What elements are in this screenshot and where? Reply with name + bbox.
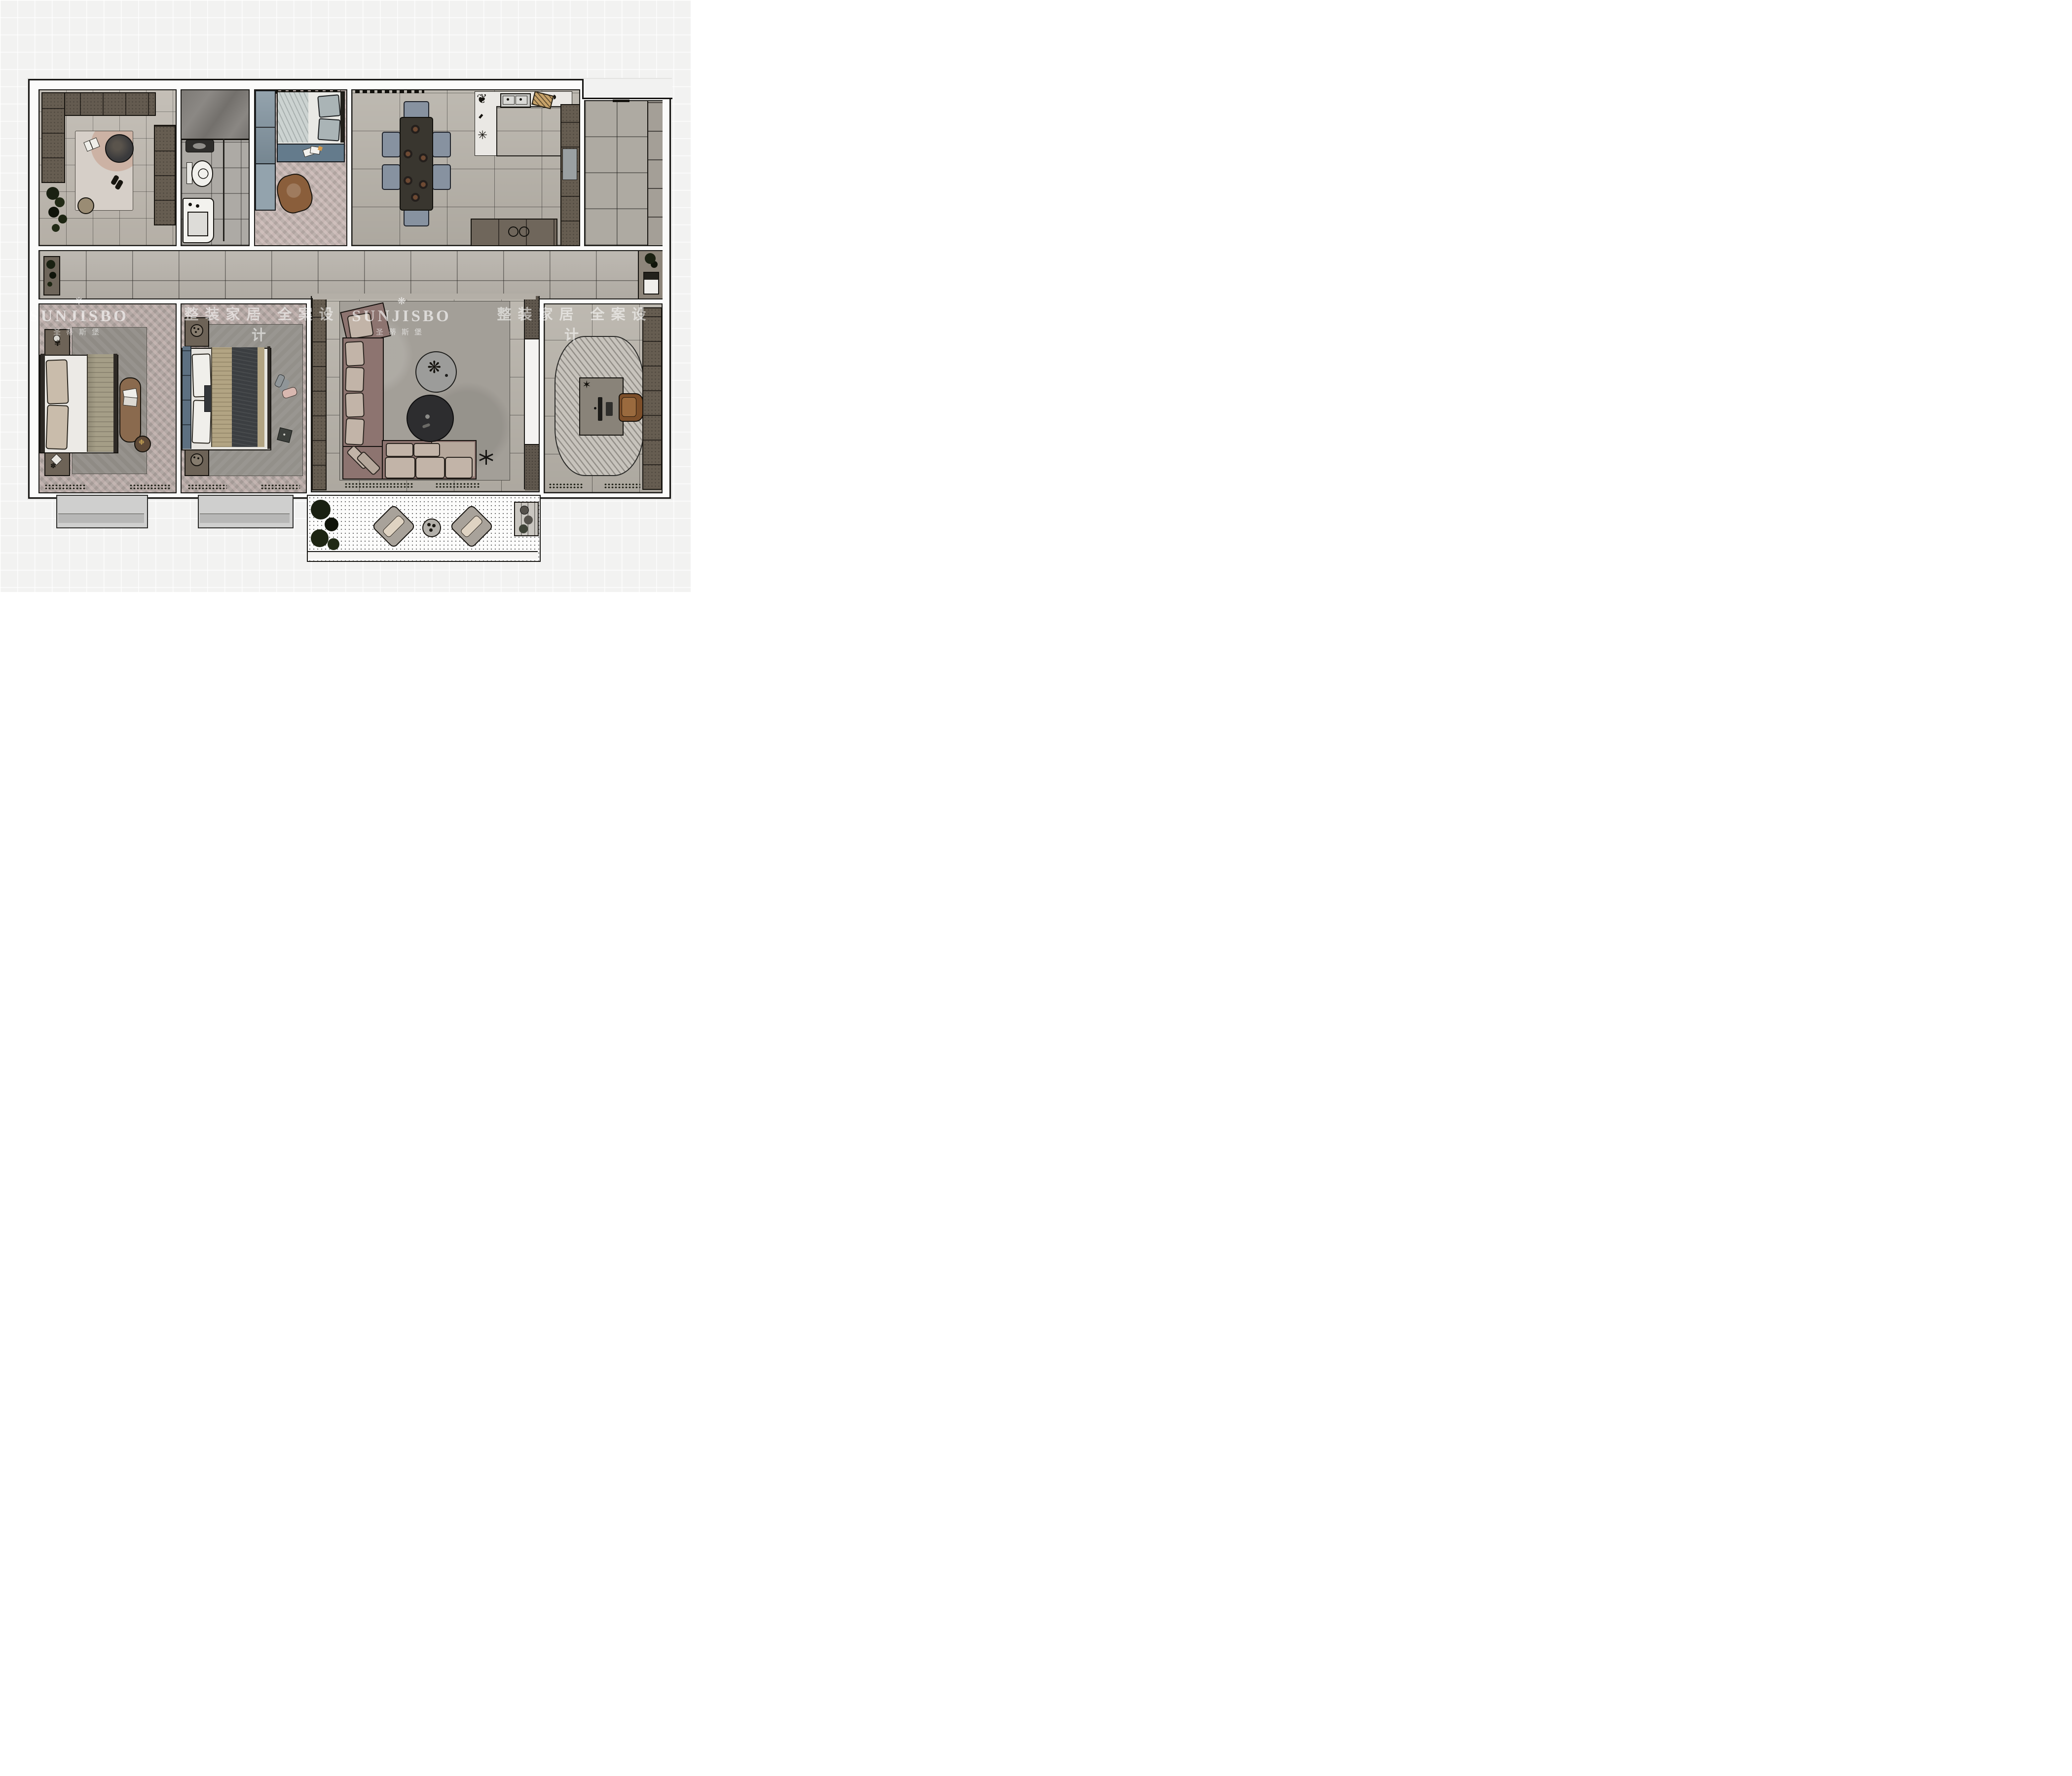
nightstand (185, 446, 209, 476)
place-setting (404, 176, 412, 185)
lounge-chair (449, 504, 494, 549)
place-setting (411, 125, 420, 134)
lounge-chair (105, 134, 134, 163)
toilet (186, 160, 212, 185)
shower-marble-slab (182, 90, 249, 140)
corridor-living-opening (313, 294, 536, 299)
desk: ✶ (579, 377, 624, 436)
double-bed (182, 348, 271, 450)
headboard (183, 346, 191, 449)
room-kids-bedroom (254, 89, 347, 246)
headboard (40, 354, 45, 452)
sofa-left-run (342, 337, 384, 449)
sofa-bottom-run (382, 440, 477, 480)
beanbag-chair (273, 170, 316, 217)
coffee-table-plant: ❋ (415, 351, 457, 393)
balcony-table (422, 518, 441, 537)
place-setting (404, 149, 412, 158)
footboard (267, 346, 270, 449)
kids-cabinet-low (255, 163, 276, 211)
place-setting (419, 180, 428, 189)
footboard (113, 354, 117, 452)
plants (549, 483, 583, 489)
herbs-icon: ❦ (477, 92, 487, 105)
blanket-charcoal (232, 347, 258, 447)
plants (187, 484, 227, 490)
blanket (87, 354, 115, 452)
plants (129, 484, 171, 490)
plant-cluster (46, 187, 59, 200)
shower-glass-line (223, 139, 224, 241)
pillow (45, 359, 69, 404)
nightstand (185, 317, 209, 347)
monitor-base (606, 402, 613, 416)
dining-chair (382, 132, 401, 157)
blanket-tan-edge (258, 347, 264, 447)
kitchen-zone-outline (496, 106, 562, 156)
room-bedroom-2 (181, 303, 307, 493)
dining-chair (432, 164, 451, 190)
bay-window (56, 495, 148, 528)
room-lounge (38, 89, 177, 246)
balcony-railing (308, 551, 538, 559)
tv-wall (524, 296, 539, 489)
planter-stand (514, 502, 539, 536)
floorplan-canvas: ❦ ◗ ✳ ▮ (0, 0, 691, 592)
coffee-table-dark (407, 395, 454, 442)
plants (44, 484, 87, 490)
room-living: ❋ (311, 296, 540, 492)
room-bedroom-1: ✾ ✽ ❉ (38, 303, 177, 493)
floor-pouf (77, 197, 94, 214)
double-bed (39, 355, 118, 453)
living-wardrobe (312, 298, 327, 490)
bookcase (642, 307, 662, 490)
sofa-corner (342, 446, 384, 480)
bed-end-bench (277, 144, 345, 162)
side-table: ❉ (134, 436, 151, 452)
door-mark (613, 100, 629, 102)
lounge-cabinet-left (41, 92, 65, 183)
keyboard (598, 397, 602, 421)
kids-wardrobe (255, 90, 276, 165)
corridor-plant-pot (43, 256, 60, 296)
tripod-side-table (478, 449, 494, 466)
dining-chair (432, 132, 451, 157)
corridor (38, 250, 663, 299)
utensils-icon: ✳ (478, 130, 487, 142)
place-setting (419, 153, 428, 162)
corridor-end-niche (638, 251, 663, 298)
dining-chair (404, 209, 429, 226)
plants (260, 484, 300, 490)
desk-plant-icon: ✶ (582, 379, 591, 390)
curtain (355, 90, 424, 93)
kettle-icon: ◗ (552, 91, 558, 102)
main-floorplan: ❦ ◗ ✳ ▮ (28, 79, 671, 499)
plants (344, 482, 413, 488)
bay-window (198, 495, 294, 528)
office-chair (619, 393, 643, 422)
plants (604, 483, 640, 489)
double-sink (500, 93, 531, 108)
plants (435, 482, 480, 488)
lounge-cabinet-right (154, 125, 176, 225)
utility-shelf-strip (647, 101, 663, 245)
balcony (307, 495, 541, 562)
room-utility-balcony (584, 100, 663, 246)
washing-machine (183, 198, 214, 243)
room-study: ✶ (544, 303, 663, 493)
kitchen-tall-cabinet (560, 104, 580, 246)
blanket-tan (211, 347, 233, 447)
outline-step (582, 79, 672, 99)
lounge-wardrobe-top (57, 92, 156, 116)
sink (185, 140, 214, 152)
place-setting (411, 193, 420, 202)
dining-chair (382, 164, 401, 190)
room-bathroom (181, 89, 250, 246)
pillow (45, 405, 69, 449)
kids-bed (277, 91, 345, 146)
lounge-chair (371, 504, 416, 549)
kitchen-bottom-counter (471, 219, 557, 246)
balcony-plants (311, 500, 331, 519)
room-dining-kitchen: ❦ ◗ ✳ ▮ (351, 89, 580, 246)
dining-chair (404, 101, 429, 119)
bedroom-bench (119, 377, 141, 443)
nightstand: ✾ (44, 329, 70, 356)
